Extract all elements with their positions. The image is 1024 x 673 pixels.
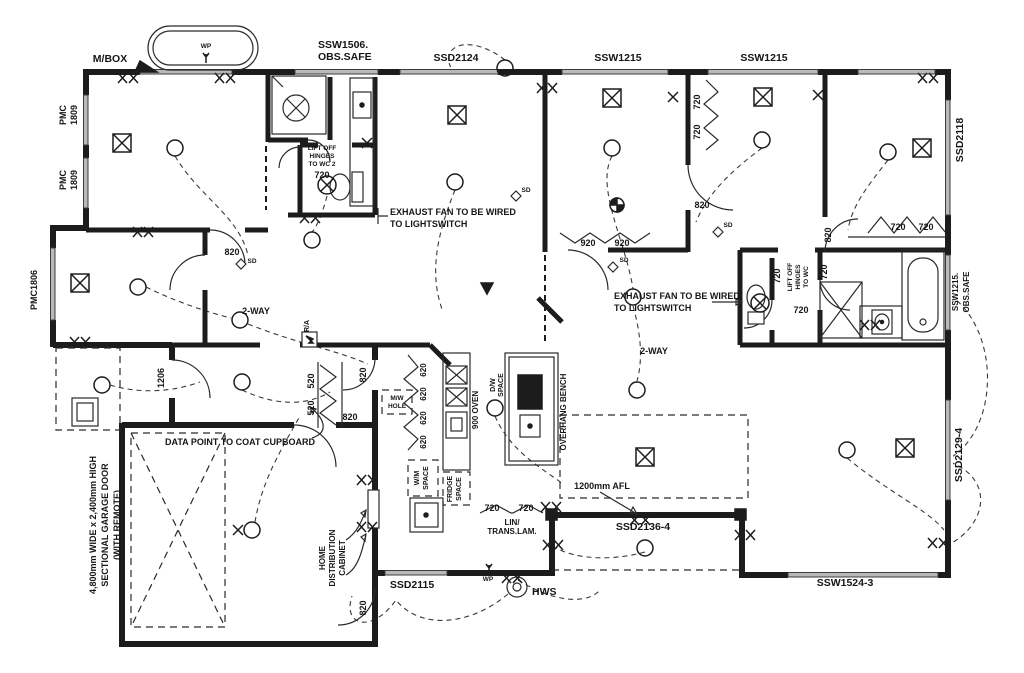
home-distribution-cabinet-box xyxy=(368,490,379,528)
exhaust-fan-icon xyxy=(448,106,466,124)
label-ssd2136-4: SSD2136-4 xyxy=(616,521,670,533)
label-door-720-robe3b: 720 xyxy=(692,124,702,139)
label-620-4: 620 xyxy=(419,435,428,449)
labels: M/BOX WP SSW1506. OBS.SAFE SSD2124 SSW12… xyxy=(29,39,971,616)
note-hdc-3: CABINET xyxy=(338,540,347,576)
label-dw-2: SPACE xyxy=(498,373,505,397)
label-door-720-lin-b: 720 xyxy=(518,503,533,513)
label-lin-2: TRANS.LAM. xyxy=(487,527,536,536)
note-hdc-2: DISTRIBUTION xyxy=(328,529,337,586)
hdc-leader-2 xyxy=(346,534,366,575)
label-pmc-b-num: 1809 xyxy=(69,170,79,190)
light-icon xyxy=(130,279,146,295)
label-lin-1: LIN/ xyxy=(504,518,520,527)
afl-leader xyxy=(600,492,637,514)
light-icon xyxy=(234,374,250,390)
two-way-light-icon xyxy=(629,382,645,398)
note-garage-door-1: 4,800mm WIDE x 2,400mm HIGH xyxy=(88,456,98,594)
exhaust-note-leader-1 xyxy=(378,208,388,224)
label-ssw1506-2: OBS.SAFE xyxy=(318,51,372,63)
label-sd-4: SD xyxy=(723,222,732,229)
shower-2 xyxy=(272,76,326,134)
island-bench xyxy=(505,353,558,465)
fixtures xyxy=(56,26,944,627)
electrical-floor-plan: M/BOX WP SSW1506. OBS.SAFE SSD2124 SSW12… xyxy=(0,0,1024,673)
label-pmc-b: PMC xyxy=(58,170,68,191)
label-fridge-1: FRIDGE xyxy=(447,475,454,502)
label-door-720-wc2: 720 xyxy=(314,170,329,180)
bathtub xyxy=(902,250,944,340)
label-sd-3: SD xyxy=(619,257,628,264)
label-ssw1215-obs-1: SSW1215. xyxy=(951,273,960,311)
label-door-720-robe1b: 720 xyxy=(918,222,933,232)
label-door-820-garage-rear: 820 xyxy=(358,600,368,615)
single-power-point-icon xyxy=(233,525,243,535)
note-2way-a: 2-WAY xyxy=(242,306,270,316)
note-exhaust2-2: TO LIGHTSWITCH xyxy=(614,303,691,313)
exhaust-fan-icon xyxy=(71,274,89,292)
electrical-symbols xyxy=(70,53,948,583)
exhaust-fan-icon xyxy=(113,134,131,152)
label-door-720-bath: 720 xyxy=(819,264,829,279)
floor-plan-svg: M/BOX WP SSW1506. OBS.SAFE SSD2124 SSW12… xyxy=(0,0,1024,673)
label-door-920-a: 920 xyxy=(580,238,595,248)
double-power-point-icon xyxy=(860,320,880,330)
single-power-point-icon xyxy=(668,92,678,102)
windows xyxy=(48,67,953,580)
exhaust-fan-icon xyxy=(636,448,654,466)
label-door-820-garage-hall: 820 xyxy=(342,412,357,422)
special-point-icon xyxy=(610,198,624,212)
label-ssw1215-obs-2: OBS.SAFE xyxy=(962,271,971,313)
note-liftoff-wc2-2: HINGES xyxy=(310,153,336,160)
label-ssw1215-a: SSW1215 xyxy=(594,52,641,64)
label-mw-2: HOLE xyxy=(388,403,407,410)
label-door-720-ens: 720 xyxy=(793,305,808,315)
label-door-820-bed1: 820 xyxy=(823,227,833,242)
garage-door-zone xyxy=(131,433,225,627)
smoke-detector-icon xyxy=(608,262,618,272)
note-exhaust2-1: EXHAUST FAN TO BE WIRED xyxy=(614,291,740,301)
kitchen-bench xyxy=(443,353,470,470)
label-ssd2115: SSD2115 xyxy=(390,579,435,591)
exhaust-fan-icon xyxy=(913,139,931,157)
label-ssw1215-b: SSW1215 xyxy=(740,52,787,64)
label-pmc1806: PMC1806 xyxy=(29,270,39,310)
label-wm-1: W/M xyxy=(414,471,421,486)
light-icon xyxy=(244,522,260,538)
note-data-point: DATA POINT TO COAT CUPBOARD xyxy=(165,437,315,447)
microwave-hole xyxy=(382,390,412,414)
light-icon xyxy=(839,442,855,458)
smoke-detector-icon xyxy=(713,227,723,237)
label-mw-1: M/W xyxy=(390,395,404,402)
label-door-820-hall: 820 xyxy=(224,247,239,257)
return-air-grille xyxy=(302,332,317,347)
note-exhaust1-2: TO LIGHTSWITCH xyxy=(390,219,467,229)
label-620-3: 620 xyxy=(419,411,428,425)
label-ssw1506-1: SSW1506. xyxy=(318,39,368,51)
label-ssd2129-4: SSD2129-4 xyxy=(953,428,965,482)
exhaust-fan-icon xyxy=(754,88,772,106)
exhaust-fan-icon xyxy=(603,89,621,107)
label-fridge-2: SPACE xyxy=(456,477,463,501)
single-power-point-icon xyxy=(813,90,823,100)
label-door-720-robe3a: 720 xyxy=(692,94,702,109)
exhaust-fan-icon xyxy=(896,439,914,457)
label-pmc-a: PMC xyxy=(58,105,68,126)
label-door-820-bed3: 820 xyxy=(694,200,709,210)
label-door-1206: 1206 xyxy=(156,368,166,388)
label-dw-1: D/W xyxy=(490,378,497,392)
note-afl: 1200mm AFL xyxy=(574,481,630,491)
label-pmc-a-num: 1809 xyxy=(69,105,79,125)
laundry-trough xyxy=(410,498,443,532)
light-icon xyxy=(487,400,503,416)
label-door-720-lin-a: 720 xyxy=(484,503,499,513)
light-icon xyxy=(447,174,463,190)
label-oven: 900 OVEN xyxy=(471,391,480,429)
label-wp-top: WP xyxy=(201,43,212,50)
label-door-720-robe1a: 720 xyxy=(890,222,905,232)
smoke-detector-icon xyxy=(511,191,521,201)
note-2way-b: 2-WAY xyxy=(640,346,668,356)
interior-walls xyxy=(86,72,946,428)
note-liftoff-wc1-3: TO WC xyxy=(803,266,810,288)
label-wp-bottom: WP xyxy=(483,576,494,583)
label-door-720-wc1: 720 xyxy=(772,268,782,283)
label-door-920-b: 920 xyxy=(614,238,629,248)
light-icon xyxy=(604,140,620,156)
label-ssd2124: SSD2124 xyxy=(434,52,479,64)
label-620-1: 620 xyxy=(419,363,428,377)
light-icon xyxy=(880,144,896,160)
note-liftoff-wc1-2: HINGES xyxy=(795,264,802,290)
light-icon xyxy=(94,377,110,393)
label-door-820-kitchen: 820 xyxy=(358,367,368,382)
label-ssw1524-3: SSW1524-3 xyxy=(817,577,874,589)
note-liftoff-wc1-1: LIFT OFF xyxy=(787,263,794,292)
note-exhaust1-1: EXHAUST FAN TO BE WIRED xyxy=(390,207,516,217)
label-620-2: 620 xyxy=(419,387,428,401)
exterior-walls xyxy=(53,69,948,644)
light-icon xyxy=(754,132,770,148)
north-marker xyxy=(481,283,493,294)
ensuite-shower xyxy=(820,282,862,338)
label-mbox: M/BOX xyxy=(93,53,127,65)
note-garage-door-3: (WITH REMOTE) xyxy=(112,490,122,560)
label-overhang-bench: OVERHANG BENCH xyxy=(559,373,568,450)
note-liftoff-wc2-1: LIFT OFF xyxy=(308,145,337,152)
toilet-wc2 xyxy=(330,172,363,202)
note-liftoff-wc2-3: TO WC 2 xyxy=(309,161,336,168)
weatherproof-point-icon xyxy=(203,53,209,63)
light-icon xyxy=(167,140,183,156)
label-hws: HWS xyxy=(532,586,557,598)
note-garage-door-2: SECTIONAL GARAGE DOOR xyxy=(100,463,110,587)
wiring-runs xyxy=(110,45,988,623)
note-hdc-1: HOME xyxy=(318,545,327,570)
label-door-520-b: 520 xyxy=(306,400,316,415)
label-return-air: R/A xyxy=(304,320,311,332)
light-icon xyxy=(637,540,653,556)
label-ssd2118: SSD2118 xyxy=(954,118,966,163)
label-sd-1: SD xyxy=(247,258,256,265)
label-door-520-a: 520 xyxy=(306,373,316,388)
hot-water-system xyxy=(507,577,527,597)
label-wm-2: SPACE xyxy=(423,466,430,490)
label-sd-2: SD xyxy=(521,187,530,194)
porch xyxy=(56,348,120,430)
light-icon xyxy=(304,232,320,248)
